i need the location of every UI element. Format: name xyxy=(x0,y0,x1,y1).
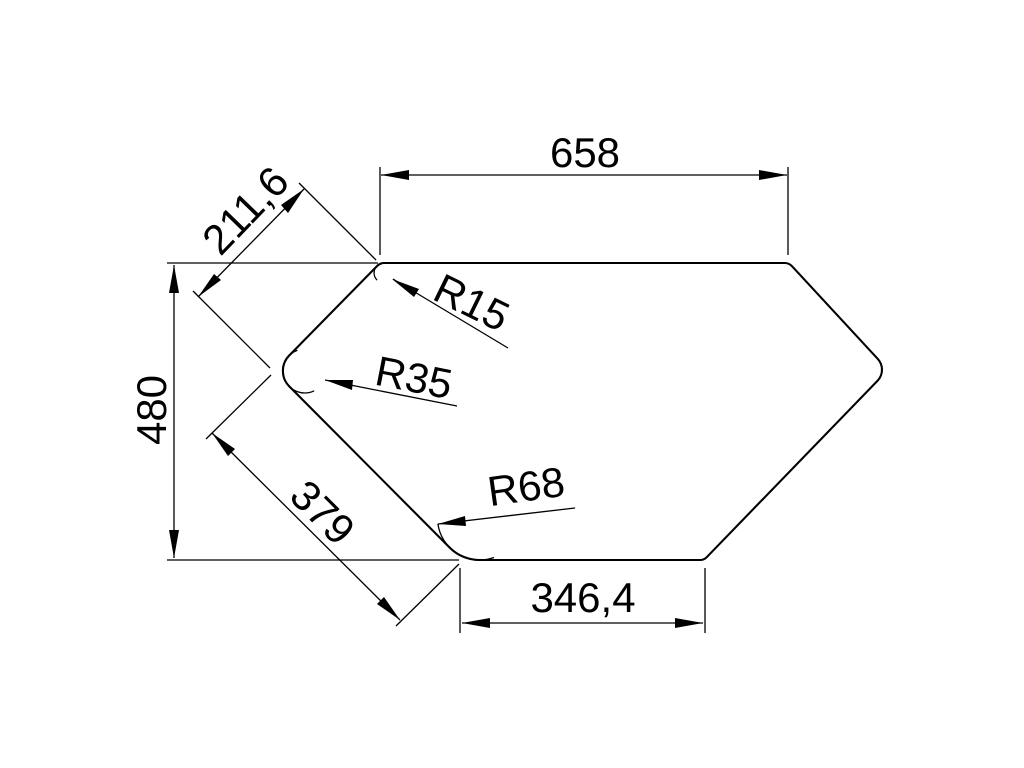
dim-left-height-arrow-top xyxy=(169,265,179,293)
dim-left-height-label: 480 xyxy=(128,375,175,445)
dim-upper-edge-arrow-bottom xyxy=(198,274,221,297)
radius-r35-label: R35 xyxy=(372,347,457,408)
fillet-arc-r35 xyxy=(283,350,314,393)
dim-lower-edge-ext-bottom xyxy=(396,564,459,626)
fillet-arc-r68 xyxy=(438,524,494,560)
dim-left-height-arrow-bottom xyxy=(169,530,179,558)
dimension-drawing-svg: 658 480 211,6 379 346,4 R15 R35 R68 xyxy=(0,0,1024,768)
radius-r15-label: R15 xyxy=(427,264,517,340)
leader-r35-arrow xyxy=(325,380,353,390)
dim-upper-edge-ext-top xyxy=(299,183,376,260)
radius-r68-label: R68 xyxy=(485,458,568,515)
leader-r15-arrow xyxy=(392,279,419,297)
dim-top-width-label: 658 xyxy=(550,129,620,176)
dim-upper-edge-label: 211,6 xyxy=(193,157,298,263)
dim-top-width-arrow-right xyxy=(759,170,787,180)
shape-outline xyxy=(283,263,882,560)
dim-bottom-width-arrow-right xyxy=(675,618,703,628)
technical-drawing-canvas: 658 480 211,6 379 346,4 R15 R35 R68 xyxy=(0,0,1024,768)
dim-top-width-arrow-left xyxy=(381,170,409,180)
fillet-arc-r15 xyxy=(374,263,387,280)
dim-bottom-width-arrow-left xyxy=(462,618,490,628)
dim-lower-edge-label: 379 xyxy=(281,471,364,554)
leader-r68-arrow xyxy=(438,516,466,526)
dim-lower-edge-ext-top xyxy=(206,375,271,439)
dim-upper-edge-ext-bottom xyxy=(193,291,270,368)
dim-bottom-width-label: 346,4 xyxy=(530,574,635,621)
